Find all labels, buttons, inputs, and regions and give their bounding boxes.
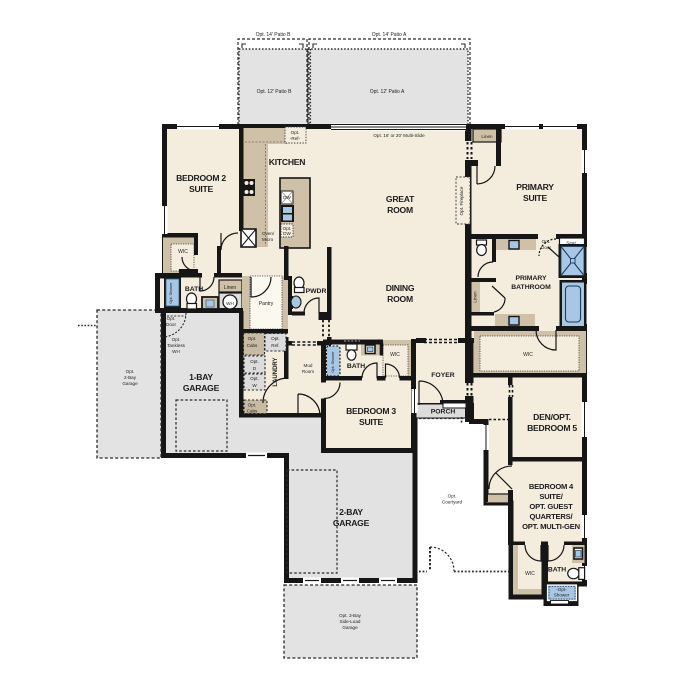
svg-text:Opt. 12' Patio A: Opt. 12' Patio A [370,89,405,95]
svg-text:Door: Door [166,322,176,327]
svg-text:BATH: BATH [185,286,203,293]
svg-text:Courtyard: Courtyard [442,500,463,505]
svg-text:PORCH: PORCH [431,409,456,416]
svg-text:Ref.: Ref. [271,343,279,348]
svg-text:Oven/: Oven/ [262,231,275,236]
svg-text:QUARTERS/: QUARTERS/ [530,512,574,521]
svg-text:Opt. Fireplace: Opt. Fireplace [459,186,464,215]
svg-text:Shower: Shower [554,593,570,598]
svg-text:PRIMARY: PRIMARY [515,275,547,282]
svg-text:Tankless: Tankless [167,343,186,348]
svg-text:PRIMARY: PRIMARY [516,182,554,192]
svg-text:Opt. Shower: Opt. Shower [169,282,173,304]
svg-text:Room: Room [302,369,314,374]
svg-text:WIC: WIC [390,352,400,358]
svg-text:Opt.: Opt. [248,336,257,341]
svg-text:Garage: Garage [122,381,138,386]
svg-text:GARAGE: GARAGE [333,518,370,528]
svg-text:Opt.: Opt. [542,239,551,244]
svg-text:1-BAY: 1-BAY [189,372,213,382]
svg-text:Opt. Shower: Opt. Shower [331,351,335,373]
svg-text:WH: WH [172,349,180,354]
svg-text:Cabs: Cabs [247,409,258,414]
svg-text:Opt.: Opt. [448,494,457,499]
svg-text:WIC: WIC [523,352,533,358]
svg-text:BEDROOM 3: BEDROOM 3 [346,406,396,416]
svg-text:Opt.: Opt. [291,130,300,135]
svg-text:WH: WH [226,301,234,306]
svg-text:Opt. 16' or 20' Multi-Slide: Opt. 16' or 20' Multi-Slide [373,133,425,138]
svg-text:Opt.: Opt. [250,359,259,364]
svg-text:Pantry: Pantry [259,301,274,307]
svg-text:2-BAY: 2-BAY [339,507,363,517]
svg-text:Door: Door [541,245,551,250]
svg-text:GARAGE: GARAGE [183,383,220,393]
svg-text:Opt.: Opt. [172,337,181,342]
svg-text:SUITE: SUITE [359,417,384,427]
svg-text:WIC: WIC [525,571,535,577]
svg-text:Opt.: Opt. [126,369,135,374]
svg-text:Opt. 14' Patio A: Opt. 14' Patio A [372,32,407,38]
svg-text:Cabs: Cabs [247,343,258,348]
svg-text:LAUNDRY: LAUNDRY [273,357,279,386]
svg-text:PWDR: PWDR [306,288,327,295]
svg-text:OPT. MULTI-GEN: OPT. MULTI-GEN [522,522,580,531]
svg-text:-Ref-: -Ref- [290,136,301,141]
svg-text:BATH: BATH [347,363,365,370]
svg-text:-Opt-: -Opt- [556,587,567,592]
svg-text:Linen: Linen [224,285,236,291]
svg-text:Garage: Garage [342,625,358,630]
svg-text:GREAT: GREAT [386,194,415,204]
svg-text:BEDROOM 2: BEDROOM 2 [176,173,226,183]
svg-text:DINING: DINING [386,283,415,293]
svg-text:W: W [252,383,257,388]
svg-text:SUITE/: SUITE/ [539,492,563,501]
svg-text:SUITE: SUITE [523,193,548,203]
svg-text:BATH: BATH [548,567,566,574]
svg-text:Opt.: Opt. [167,316,176,321]
svg-text:Micro: Micro [262,237,274,242]
svg-text:Opt. 3-Bay: Opt. 3-Bay [339,613,362,618]
svg-text:BEDROOM 5: BEDROOM 5 [527,423,577,433]
svg-text:KITCHEN: KITCHEN [269,157,305,167]
svg-text:Opt.: Opt. [248,403,257,408]
svg-text:OPT. GUEST: OPT. GUEST [529,502,573,511]
svg-text:SUITE: SUITE [189,184,214,194]
svg-text:Seat: Seat [566,241,576,246]
svg-text:Side-Load: Side-Load [340,619,361,624]
svg-text:Linen: Linen [481,134,493,139]
svg-text:Linen: Linen [473,291,478,303]
svg-text:DW: DW [283,195,291,200]
svg-text:BEDROOM 4: BEDROOM 4 [529,482,574,491]
svg-text:Mud: Mud [304,363,313,368]
svg-text:DW: DW [283,231,291,236]
svg-text:2-Bay: 2-Bay [124,375,137,380]
svg-text:Opt.: Opt. [271,336,280,341]
svg-text:DEN/OPT.: DEN/OPT. [533,412,571,422]
svg-text:ROOM: ROOM [387,294,413,304]
svg-text:FOYER: FOYER [431,372,455,379]
svg-text:WIC: WIC [178,249,188,255]
svg-text:BATHROOM: BATHROOM [511,284,551,291]
svg-text:ROOM: ROOM [387,205,413,215]
svg-text:Opt.: Opt. [250,376,259,381]
svg-text:Opt. 12' Patio B: Opt. 12' Patio B [257,89,293,95]
svg-text:Opt. 14' Patio B: Opt. 14' Patio B [256,32,292,38]
